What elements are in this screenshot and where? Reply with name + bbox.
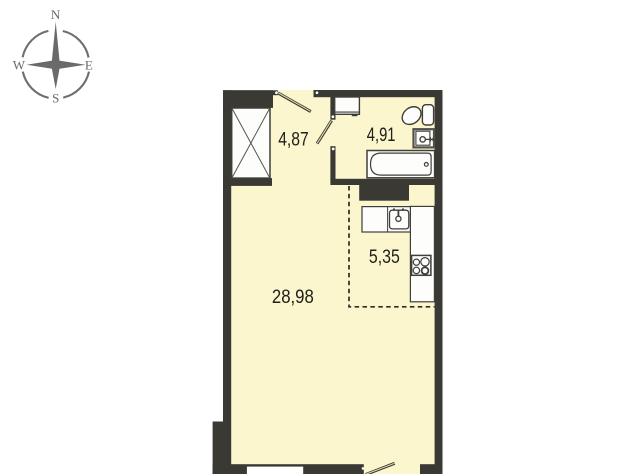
svg-text:5,35: 5,35	[369, 247, 400, 268]
svg-text:W: W	[13, 57, 26, 72]
svg-text:28,98: 28,98	[272, 287, 314, 308]
svg-text:4,91: 4,91	[367, 125, 396, 146]
svg-text:N: N	[51, 7, 61, 22]
svg-text:E: E	[85, 57, 93, 72]
svg-text:4,87: 4,87	[278, 129, 309, 150]
svg-text:S: S	[52, 91, 59, 106]
